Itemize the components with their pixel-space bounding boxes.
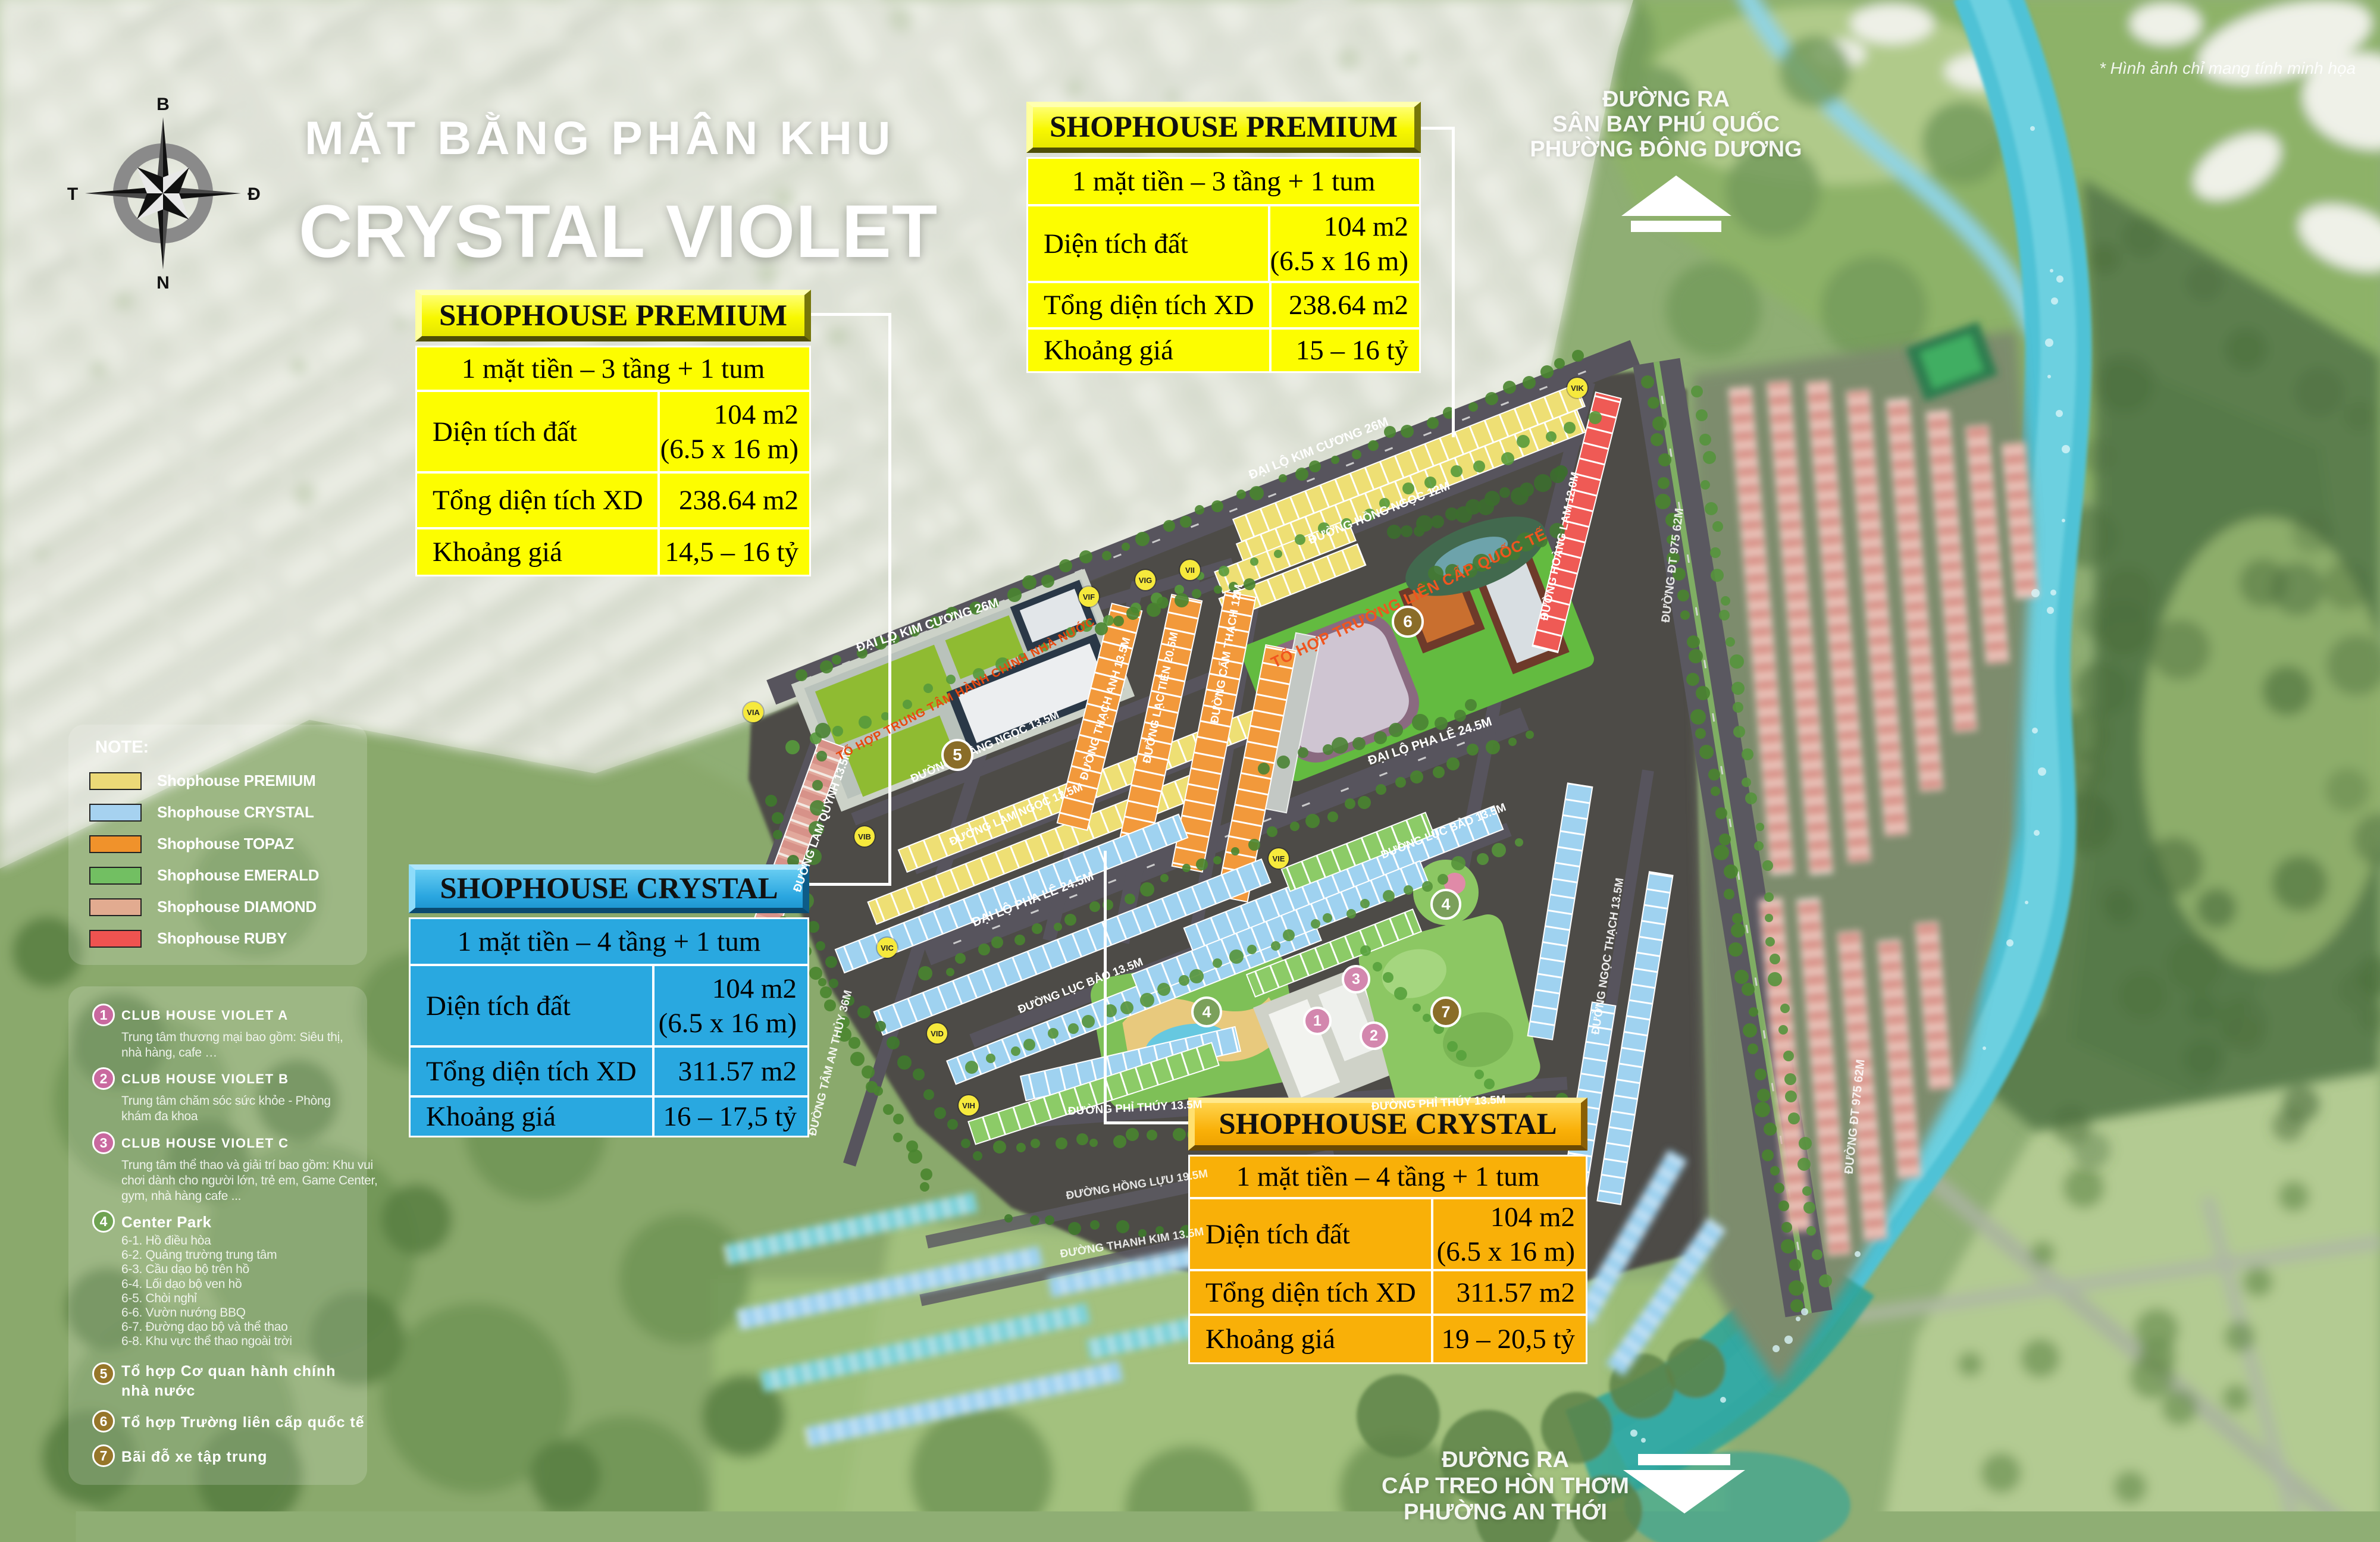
svg-text:Đ: Đ bbox=[248, 184, 261, 204]
svg-text:N: N bbox=[156, 273, 170, 293]
svg-text:T: T bbox=[67, 184, 78, 204]
svg-text:B: B bbox=[156, 95, 170, 114]
